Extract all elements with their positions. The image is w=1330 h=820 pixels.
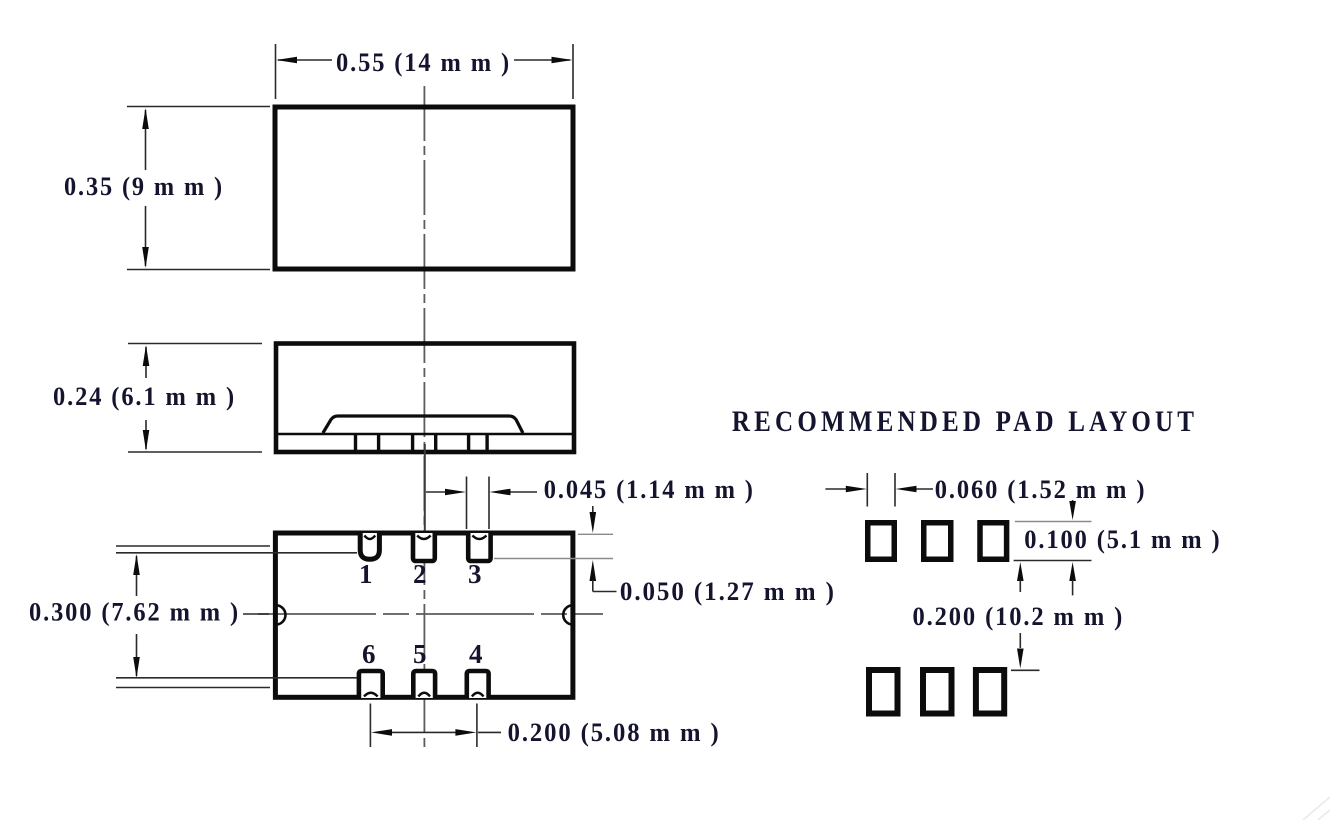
svg-text:3: 3 <box>468 559 482 589</box>
svg-text:0.200 (10.2 m m ): 0.200 (10.2 m m ) <box>913 602 1125 631</box>
svg-text:5: 5 <box>413 639 427 669</box>
svg-text:0.55 (14 m m ): 0.55 (14 m m ) <box>336 48 511 77</box>
svg-text:0.050 (1.27 m m ): 0.050 (1.27 m m ) <box>620 577 836 606</box>
svg-text:1: 1 <box>359 559 373 589</box>
svg-text:RECOMMENDED PAD LAYOUT: RECOMMENDED PAD LAYOUT <box>732 405 1198 438</box>
svg-text:0.24 (6.1 m m ): 0.24 (6.1 m m ) <box>53 382 236 411</box>
svg-text:0.060 (1.52 m m ): 0.060 (1.52 m m ) <box>935 475 1147 504</box>
svg-text:2: 2 <box>413 559 427 589</box>
svg-text:4: 4 <box>469 639 483 669</box>
svg-text:0.045 (1.14 m m ): 0.045 (1.14 m m ) <box>544 475 755 504</box>
svg-text:0.300 (7.62 m m ): 0.300 (7.62 m m ) <box>29 598 240 627</box>
svg-text:0.200 (5.08 m m ): 0.200 (5.08 m m ) <box>508 718 721 747</box>
svg-text:6: 6 <box>362 639 376 669</box>
svg-text:0.35 (9 m m ): 0.35 (9 m m ) <box>64 172 224 201</box>
svg-text:0.100 (5.1 m m ): 0.100 (5.1 m m ) <box>1024 525 1221 554</box>
